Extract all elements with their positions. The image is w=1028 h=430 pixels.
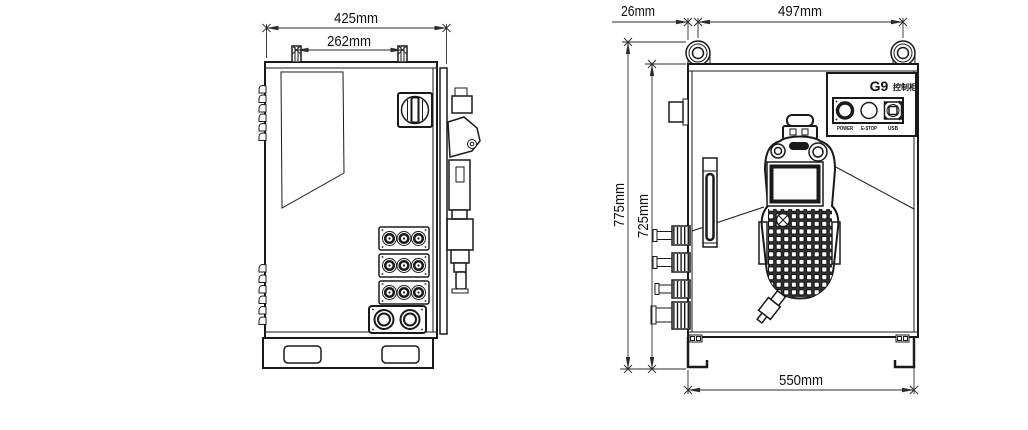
base-slot-right	[382, 346, 419, 363]
bottom-tab-left	[689, 335, 702, 342]
estop-label: E-STOP	[861, 126, 878, 132]
pendant-knob-right[interactable]	[809, 143, 827, 161]
connector-plate-bottom	[369, 306, 426, 333]
dim-front-ring-offset: 26mm	[612, 3, 702, 40]
dim-front-ring-spacing: 497mm	[698, 3, 907, 38]
bottom-tab-right	[896, 335, 909, 342]
gland-holes	[383, 286, 426, 300]
door-handle	[703, 158, 717, 247]
gland-holes	[383, 232, 426, 246]
pendant-top-connector	[452, 96, 472, 113]
dim-label-775mm: 775mm	[611, 183, 628, 227]
pendant-cable-stub	[456, 272, 466, 289]
dimension-drawing: 425mm 262mm	[0, 0, 1028, 430]
lifting-ring-left	[686, 41, 710, 65]
dim-label-725mm: 725mm	[635, 194, 652, 238]
cable-gland-4	[651, 302, 690, 329]
usb-label: USB	[888, 126, 898, 132]
connector-plate-2	[379, 254, 429, 277]
connector-plate-3	[379, 281, 429, 304]
pendant-hook-bracket	[448, 117, 480, 157]
lifting-lug-right	[398, 46, 407, 62]
dim-side-lug-spacing: 262mm	[293, 33, 407, 54]
pendant-screen	[767, 162, 823, 206]
power-label: POWER	[837, 126, 853, 132]
dim-label-425mm: 425mm	[334, 10, 378, 27]
dim-label-262mm: 262mm	[327, 33, 371, 50]
dim-front-body-width: 550mm	[684, 340, 918, 394]
cable-gland-1	[653, 226, 690, 245]
base-slot-left	[284, 346, 321, 363]
pendant-grip-ribs	[447, 219, 473, 250]
pendant-knob-left[interactable]	[771, 144, 785, 158]
dim-label-26mm: 26mm	[621, 3, 655, 20]
model-suffix-text: 控制柜	[893, 82, 917, 92]
teach-pendant-side-profile	[447, 88, 480, 293]
lifting-lug-left	[292, 46, 301, 62]
side-view: 425mm 262mm	[259, 10, 480, 368]
g9-nameplate-panel: G9 控制柜 POWER E-STOP USB	[827, 73, 917, 136]
lifting-ring-right	[891, 41, 915, 65]
drawing-canvas: 425mm 262mm	[0, 0, 1028, 430]
front-view: G9 控制柜 POWER E-STOP USB	[611, 3, 918, 394]
side-connector-box	[669, 99, 688, 125]
estop-button[interactable]	[861, 103, 877, 119]
pendant-hanger-hook	[783, 115, 817, 139]
rotary-disconnect-switch	[398, 93, 432, 127]
dim-label-497mm: 497mm	[778, 3, 822, 20]
door-edge-slab	[440, 68, 447, 334]
cable-gland-2	[653, 253, 690, 272]
cabinet-base-side	[263, 338, 433, 368]
power-indicator[interactable]	[838, 103, 853, 118]
gland-holes	[383, 259, 426, 273]
connector-plate-1	[379, 227, 429, 250]
cable-gland-3	[655, 280, 690, 298]
usb-port[interactable]	[885, 102, 902, 119]
dim-label-550mm: 550mm	[779, 372, 823, 389]
model-text: G9	[870, 78, 889, 94]
